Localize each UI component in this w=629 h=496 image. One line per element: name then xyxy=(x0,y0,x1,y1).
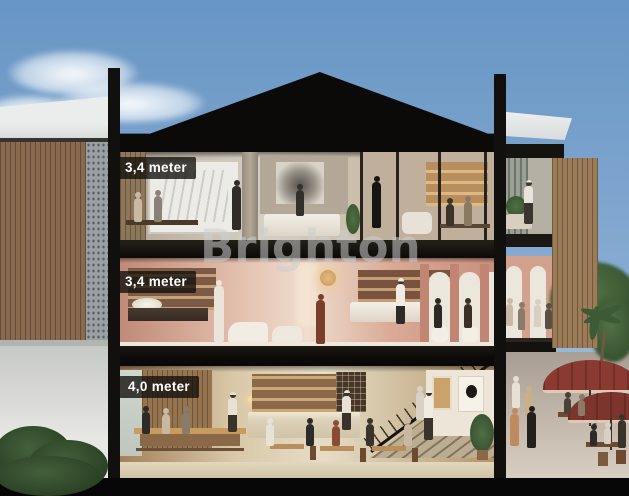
dining-chair xyxy=(310,446,316,460)
person-silhouette xyxy=(534,305,541,327)
seated-worker xyxy=(446,204,454,226)
chaise-lounge xyxy=(272,326,302,343)
diner-silhouette xyxy=(366,424,374,446)
person-silhouette xyxy=(518,308,525,330)
woman-in-dress xyxy=(214,286,224,342)
cafe-chair xyxy=(598,452,608,466)
salon-client xyxy=(464,304,472,328)
balcony-slab xyxy=(498,342,556,352)
salon-counter xyxy=(128,308,208,321)
art-circle xyxy=(466,385,477,398)
salon-pilaster xyxy=(480,264,489,346)
display-shelf xyxy=(426,162,488,206)
floor-height-label-middle: 3,4 meter xyxy=(116,271,196,293)
seated-patron xyxy=(578,400,585,416)
seated-patron xyxy=(564,398,571,414)
plant-pot xyxy=(477,450,488,460)
brighton-watermark: Brighton xyxy=(200,220,421,273)
decor-light-streak xyxy=(296,264,318,326)
table-base xyxy=(140,434,240,446)
person-silhouette xyxy=(545,309,552,329)
salon-client xyxy=(434,304,442,328)
barista-silhouette xyxy=(228,398,237,432)
dining-table xyxy=(372,446,406,451)
right-exterior xyxy=(498,0,629,496)
dining-chair xyxy=(360,448,366,462)
reception-back-wall xyxy=(260,156,348,214)
potted-plant xyxy=(470,414,494,452)
person-silhouette xyxy=(506,304,513,326)
waiter-silhouette xyxy=(424,396,433,440)
pedestrian xyxy=(527,412,536,448)
kitchen-back-shelf xyxy=(252,374,336,412)
diner-silhouette xyxy=(332,426,340,446)
dining-table xyxy=(320,446,354,451)
section-post-right xyxy=(494,74,506,482)
cafe-chair xyxy=(616,450,626,464)
left-neighbor-building xyxy=(0,94,114,480)
dining-chair xyxy=(412,448,418,462)
seated-worker xyxy=(464,202,472,226)
floor-height-label-upper: 3,4 meter xyxy=(116,157,196,179)
diner-silhouette xyxy=(182,412,190,434)
seated-patron xyxy=(604,428,611,444)
bench xyxy=(136,448,244,451)
diner-silhouette xyxy=(162,414,170,434)
receptionist-silhouette xyxy=(296,190,304,216)
roof-edge-band xyxy=(498,144,564,159)
customer-silhouette xyxy=(316,300,325,344)
floor-slab xyxy=(114,346,498,366)
diner-silhouette xyxy=(266,424,274,446)
pedestrian xyxy=(512,382,520,408)
person-silhouette xyxy=(524,186,533,224)
salon-pilaster xyxy=(450,264,459,346)
seated-worker xyxy=(134,198,142,222)
chaise-lounge xyxy=(228,322,268,343)
person-on-stairs xyxy=(416,392,424,420)
terrace-plant xyxy=(506,196,526,216)
pedestrian xyxy=(618,420,626,448)
floor-surface xyxy=(120,462,494,478)
building-cross-section-render: 3,4 meter 3,4 meter 4,0 meter Brighton xyxy=(0,0,629,496)
wine-rack xyxy=(336,372,366,412)
shrub xyxy=(0,456,100,496)
wood-slat-facade xyxy=(0,142,86,346)
salon-pilaster xyxy=(420,264,429,346)
salon-chair xyxy=(462,326,478,342)
dining-table xyxy=(270,444,304,449)
bartender-silhouette xyxy=(396,284,405,324)
barista-silhouette xyxy=(342,396,351,430)
seated-patron xyxy=(590,430,597,446)
diner-silhouette xyxy=(142,412,150,434)
white-fascia xyxy=(498,108,572,140)
diner-silhouette xyxy=(306,424,314,446)
salon-chair xyxy=(432,326,448,342)
art-frame xyxy=(458,376,484,412)
seated-worker xyxy=(154,196,162,222)
diner-silhouette xyxy=(404,424,412,446)
floor-height-label-ground: 4,0 meter xyxy=(119,376,199,398)
art-frame xyxy=(432,376,452,410)
pedestrian xyxy=(510,414,519,446)
